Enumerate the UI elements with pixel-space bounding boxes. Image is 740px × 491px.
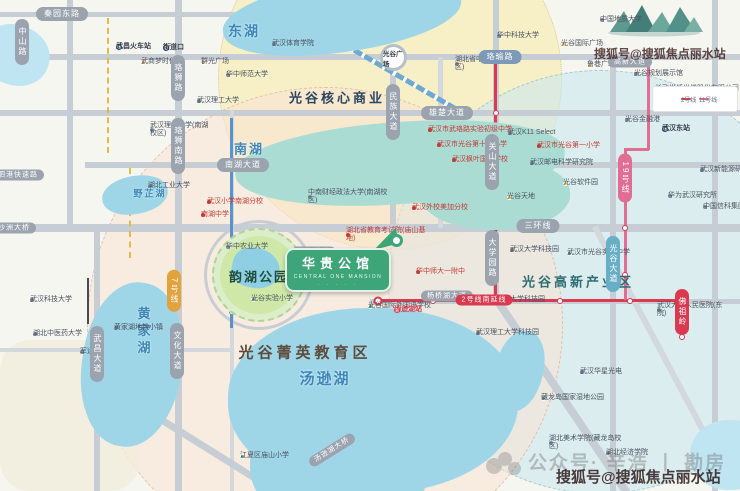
- metro-line-dark: [87, 278, 89, 324]
- poi-label: 武汉新能源研究院: [700, 166, 740, 174]
- metro-pill: 7号线: [167, 270, 181, 312]
- poi-label: 藏龙岛国家湿地公园: [541, 394, 604, 402]
- poi-label: 湖北工业大学: [148, 182, 190, 190]
- poi-label: 武汉枫叶国际学校: [452, 156, 508, 164]
- road-pill: 民族大道: [386, 84, 400, 140]
- road-pill: 中山路: [15, 19, 29, 65]
- poi-label: 武汉理工大学科技园: [476, 329, 539, 337]
- poi-label: 武昌火车站: [116, 43, 151, 51]
- project-subtitle: CENTRAL ONE MANSION: [294, 274, 383, 280]
- poi-label: 光谷天地: [507, 193, 535, 201]
- park-label: 韵湖公园: [229, 267, 289, 286]
- lake-label: 南湖: [234, 139, 264, 158]
- watermark-logo: [486, 452, 526, 482]
- road-pill: 南湖大道: [217, 158, 269, 172]
- poi-label: 武汉市武珞路实验初级中学: [428, 126, 512, 134]
- poi-label: 武汉华星光电: [580, 368, 622, 376]
- legend-item-line2: 2号线: [681, 98, 691, 101]
- poi-label: 武汉小学南湖分校: [207, 198, 263, 206]
- metro-station: [622, 225, 628, 231]
- metro-pill: 佛祖岭: [675, 289, 689, 335]
- poi-label: 湖北中医药大学: [33, 330, 82, 338]
- district-label: 光谷核心商业区: [289, 88, 401, 107]
- legend-label: 11号线: [699, 95, 717, 104]
- map-canvas: 韵湖公园 光谷广场 2号线 11号线 华贵公馆 CENTRAL ONE MANS…: [0, 0, 740, 491]
- poi-label: 江夏区庙山小学: [240, 452, 289, 460]
- poi-label: 光谷实验小学: [251, 295, 293, 303]
- road: [67, 0, 73, 232]
- road-pill: 珞狮路: [171, 55, 185, 101]
- project-location-pin: [390, 234, 403, 247]
- metro-station: [627, 298, 633, 304]
- poi-label: 群光广场: [201, 58, 229, 66]
- project-badge[interactable]: 华贵公馆 CENTRAL ONE MANSION · · · · ·: [285, 248, 391, 292]
- guanggu-square-circle: 光谷广场: [380, 44, 407, 71]
- road-pill: 珞瑜路: [479, 50, 522, 64]
- poi-label: 华为武汉研究所: [668, 192, 717, 200]
- poi-label: 光谷规划展示馆: [634, 70, 683, 78]
- road-pill: 白沙洲大桥: [0, 223, 36, 234]
- poi-label: 武汉科技大学: [30, 296, 72, 304]
- poi-label: 华中农业大学: [226, 243, 268, 251]
- poi-label: 武汉体育学院: [272, 40, 314, 48]
- poi-label: 武汉市光谷实验中学: [567, 249, 630, 257]
- road-pill: 珞狮南路: [171, 118, 185, 174]
- poi-label: 汤逊湖站: [394, 306, 422, 314]
- road-pill: 秦园东路: [36, 7, 88, 21]
- poi-label: 中南财经政法大学(南湖校区): [308, 189, 390, 205]
- poi-label: 武汉K11 Select: [508, 129, 555, 137]
- metro-station: [557, 298, 563, 304]
- poi-label: 武汉大学人民医院(东院): [657, 302, 723, 318]
- legend-item-line11: 11号线: [699, 98, 709, 101]
- guanggu-square-label: 光谷广场: [383, 48, 404, 68]
- road-pill: 关山大道: [485, 134, 499, 190]
- legend-label: 2号线: [681, 95, 696, 104]
- road-pill: 武昌大道: [90, 326, 104, 382]
- watermark-top-right: 搜狐号@搜狐焦点丽水站: [594, 45, 726, 62]
- metro-legend: 2号线 11号线: [652, 86, 738, 112]
- poi-label: 街道口: [163, 44, 184, 52]
- poi-label: 中国地质大学: [600, 16, 642, 24]
- poi-label: 武汉市光谷第一小学: [537, 142, 600, 150]
- metro-pill: 19号线: [618, 154, 632, 203]
- poi-label: 武汉邮电科学研究院: [530, 159, 593, 167]
- road-pill: 文化大道: [170, 323, 184, 379]
- metro-line-19: [624, 148, 649, 151]
- road: [712, 0, 718, 491]
- poi-label: 南湖中学: [201, 211, 229, 219]
- lake-river: [0, 15, 58, 95]
- road-pill: 大学园路: [485, 230, 499, 286]
- poi-label: 华中师范大学: [226, 71, 268, 79]
- poi-label: 武汉大学科技园: [510, 246, 559, 254]
- road-pill: 三环线: [517, 219, 560, 233]
- lake-label: 东湖: [228, 21, 260, 41]
- watermark-sohu: 搜狐号@搜狐焦点丽水站: [556, 466, 721, 487]
- district-label: 光谷菁英教育区: [238, 342, 371, 363]
- road-pill: 光谷大道: [606, 236, 620, 292]
- lake-label: 汤逊湖: [299, 368, 350, 389]
- poi-label: 光谷金融港: [625, 116, 660, 124]
- road-pill: 雄楚大道: [421, 106, 473, 120]
- metro-station: [493, 110, 499, 116]
- poi-label: 中国信科集团: [703, 203, 740, 211]
- project-deco: · · · · ·: [318, 282, 359, 288]
- poi-label: 黄家湖地铁小镇: [114, 324, 163, 332]
- metro-pill: 2号线南延线: [456, 295, 513, 306]
- road-pill: 杨泗港快速路: [0, 170, 44, 181]
- poi-label: 武汉外校美加分校: [412, 204, 468, 212]
- project-name: 华贵公馆: [302, 253, 374, 272]
- poi-label: 华中师大一附中: [416, 268, 465, 276]
- poi-label: 武汉理工大学: [197, 97, 239, 105]
- poi-label: 武汉东站: [662, 125, 690, 133]
- poi-label: 光谷软件园: [563, 179, 598, 187]
- poi-label: 华中科技大学: [497, 32, 539, 40]
- metro-line-yellow: [107, 18, 109, 153]
